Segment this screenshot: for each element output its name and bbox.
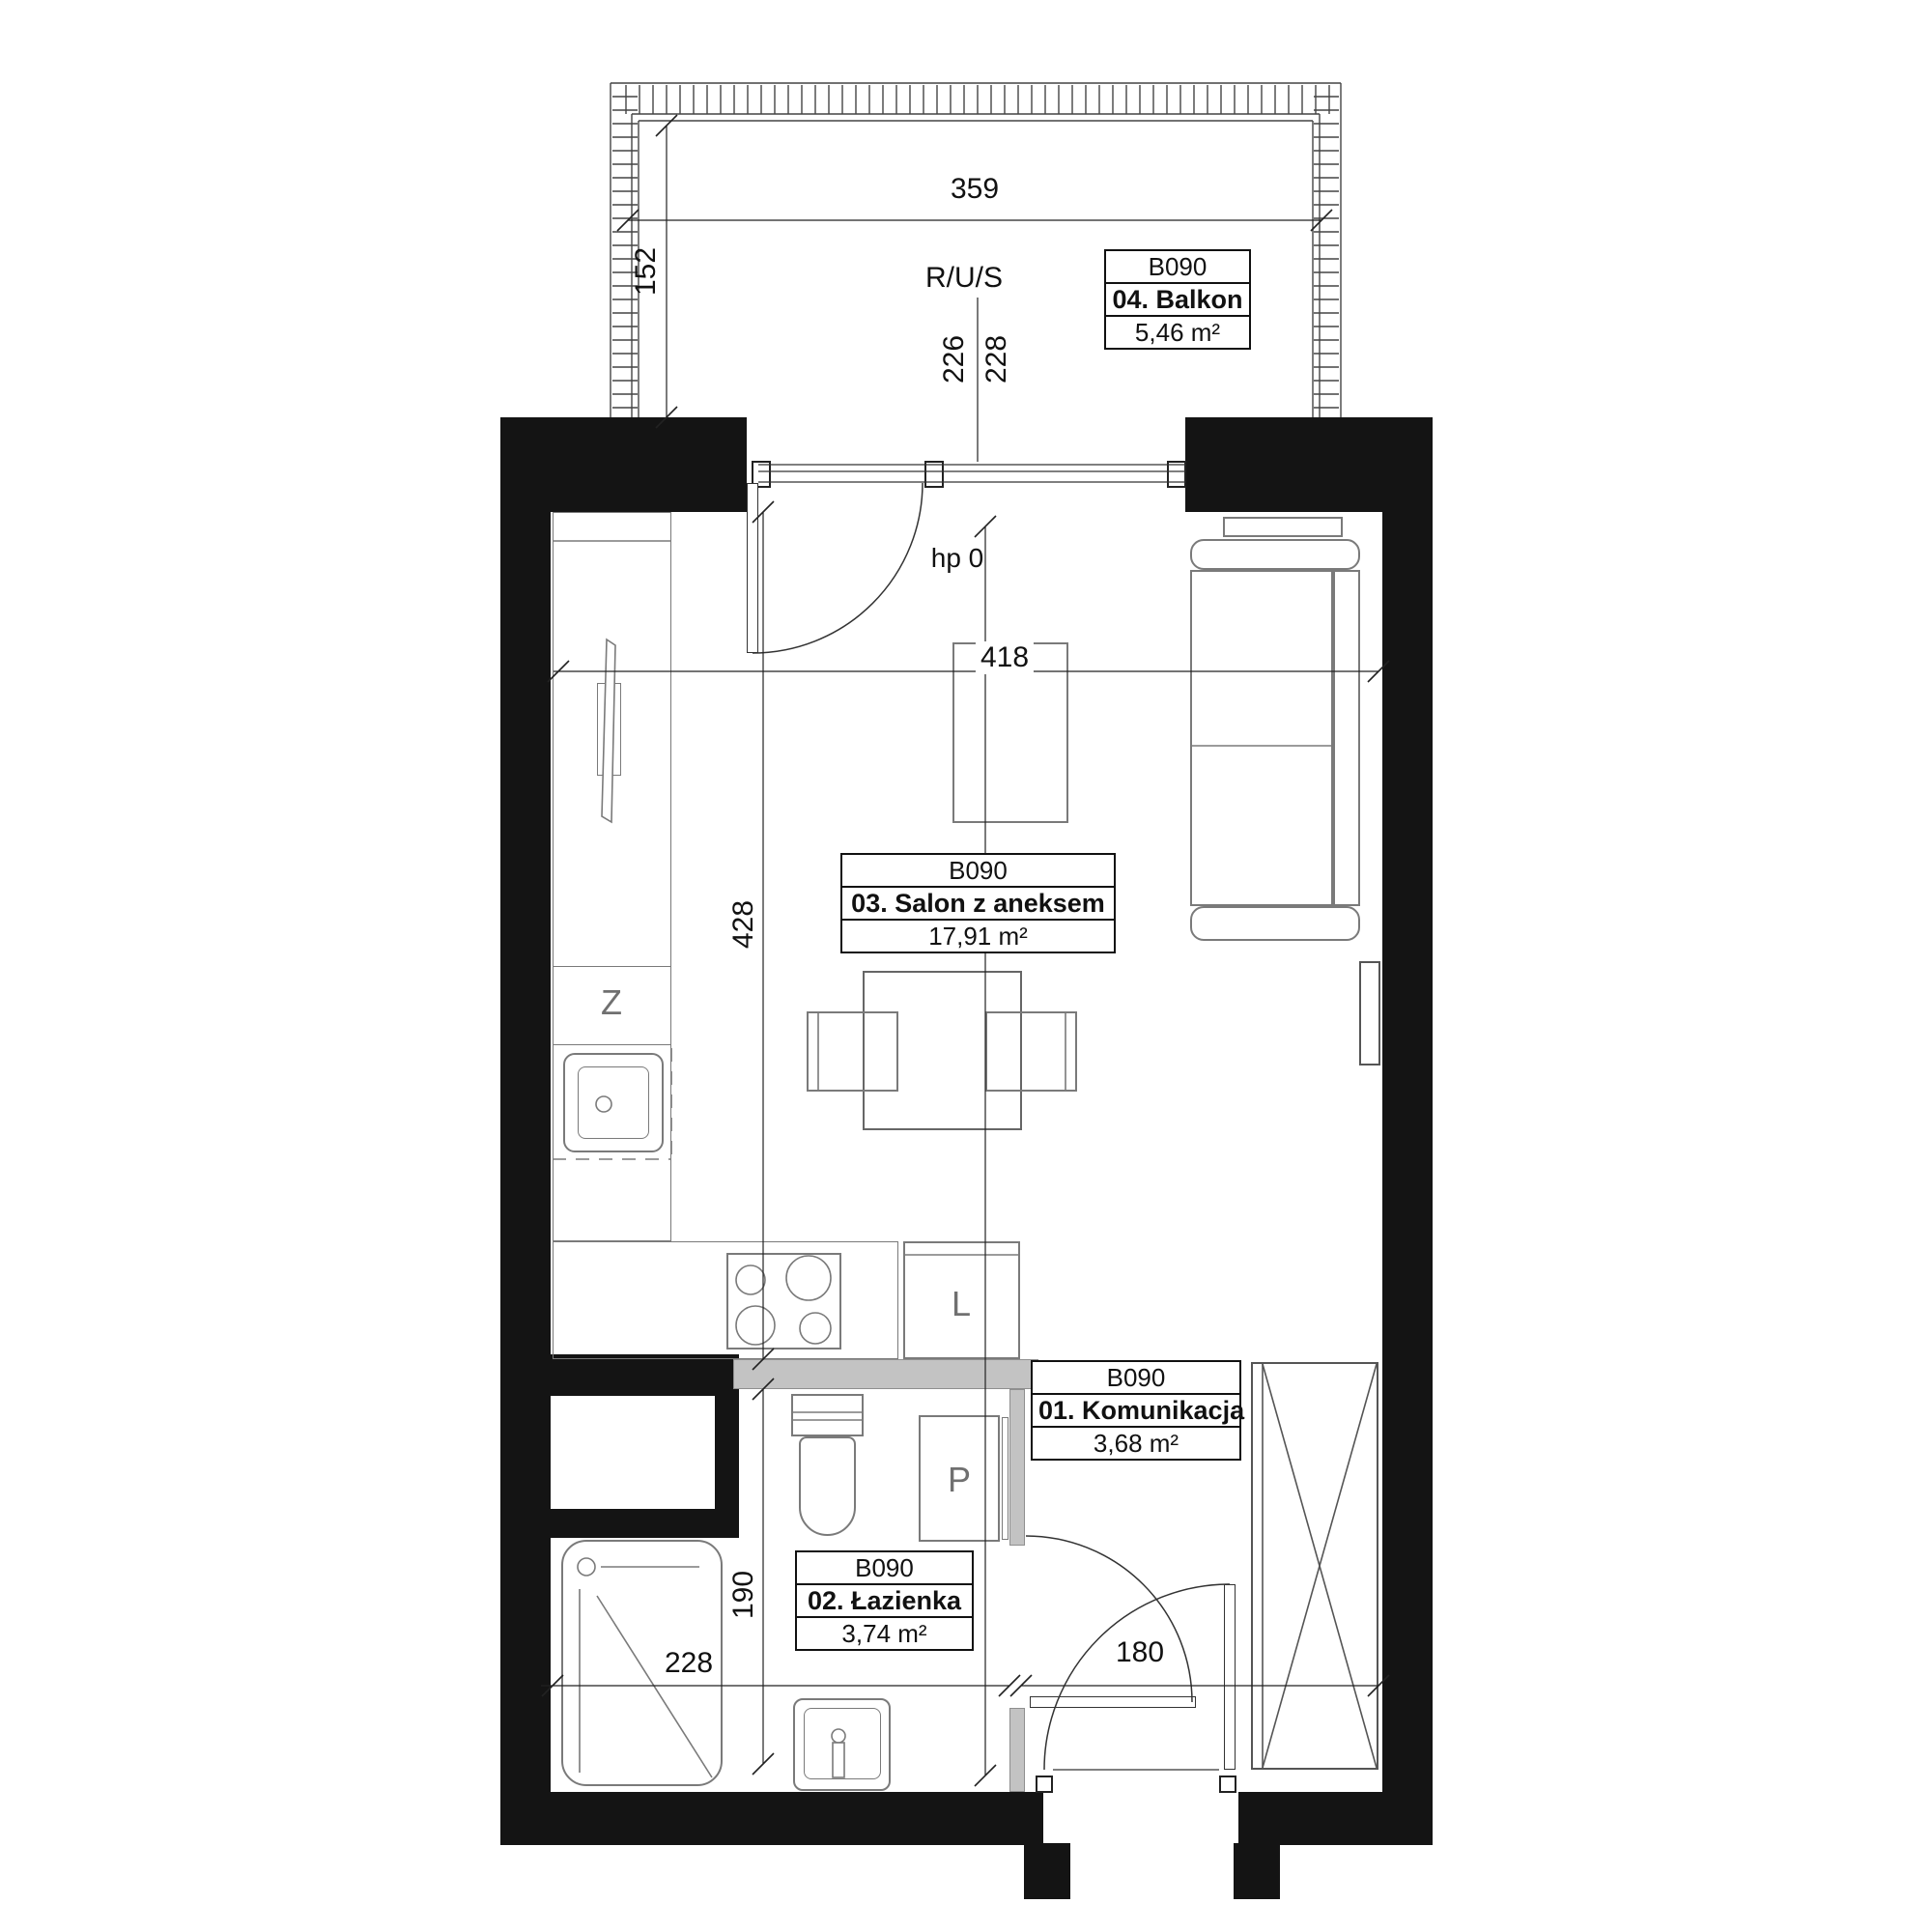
wardrobe: [1251, 1362, 1378, 1770]
entry-door-leaf: [1224, 1584, 1236, 1770]
room-name: 01. Komunikacja: [1033, 1395, 1239, 1428]
room-area: 17,91 m²: [842, 921, 1114, 952]
entry-frame-right: [1219, 1776, 1236, 1793]
sofa-armrest-top: [1190, 539, 1360, 570]
partition-bathroom-right-lower: [1009, 1708, 1025, 1792]
dim-balcony-width: 359: [951, 173, 999, 206]
room-name: 03. Salon z aneksem: [842, 888, 1114, 921]
dim-salon-width: 418: [976, 641, 1034, 674]
room-code: B090: [842, 855, 1114, 888]
chair-left: [807, 1011, 898, 1092]
room-area: 5,46 m²: [1106, 317, 1249, 348]
room-name: 04. Balkon: [1106, 284, 1249, 317]
kitchen-counter-bottom: [553, 1241, 898, 1359]
dim-balcony-depth: 152: [630, 247, 663, 296]
door-sill-label: hp 0: [931, 543, 984, 574]
room-area: 3,74 m²: [797, 1618, 972, 1649]
dim-bathroom-depth: 190: [727, 1566, 760, 1624]
radiator: [1359, 961, 1380, 1065]
chair-right: [985, 1011, 1077, 1092]
entry-jamb-left: [1024, 1843, 1070, 1899]
dim-hall-width: 180: [1111, 1636, 1169, 1669]
sofa-seat: [1190, 570, 1333, 906]
wall-bottom-left: [500, 1792, 1043, 1845]
toilet-tank: [791, 1394, 864, 1436]
room-code: B090: [1033, 1362, 1239, 1395]
dim-kitchen-depth: 428: [727, 895, 760, 953]
room-area: 3,68 m²: [1033, 1428, 1239, 1459]
room-label-komunikacja: B090 01. Komunikacja 3,68 m²: [1031, 1360, 1241, 1461]
room-code: B090: [1106, 251, 1249, 284]
duct-shaft-opening: [551, 1396, 715, 1509]
room-name: 02. Łazienka: [797, 1585, 972, 1618]
decor-mirror: [597, 683, 621, 776]
stove: [726, 1253, 841, 1350]
kitchen-sink-basin: [578, 1066, 649, 1139]
entry-frame-left: [1036, 1776, 1053, 1793]
wall-bottom-right: [1238, 1792, 1433, 1845]
washing-machine-door: [1002, 1417, 1009, 1540]
sofa-armrest-bottom: [1190, 906, 1360, 941]
wall-left: [500, 417, 551, 1845]
window-post-mid: [924, 461, 944, 488]
dim-door-right: 228: [980, 335, 1013, 384]
room-label-salon: B090 03. Salon z aneksem 17,91 m²: [840, 853, 1116, 953]
room-label-balkon: B090 04. Balkon 5,46 m²: [1104, 249, 1251, 350]
room-label-lazienka: B090 02. Łazienka 3,74 m²: [795, 1550, 974, 1651]
balcony-door-leaf: [747, 483, 758, 653]
partition-bathroom-top: [733, 1359, 1038, 1389]
sink-cabinet-label: Z: [601, 982, 622, 1023]
entry-jamb-right: [1234, 1843, 1280, 1899]
toilet-bowl: [799, 1436, 856, 1536]
bathroom-sink-basin: [804, 1708, 881, 1779]
washer-label: P: [948, 1460, 971, 1500]
floor-plan: 359 152 R/U/S 226 228 hp 0 418 428 633 1…: [0, 0, 1932, 1932]
sofa-backrest: [1333, 570, 1360, 906]
window-post-right: [1167, 461, 1186, 488]
fridge-label: L: [952, 1284, 971, 1324]
dim-bathroom-width: 228: [660, 1647, 718, 1680]
wall-right: [1382, 417, 1433, 1845]
bathroom-door-leaf: [1030, 1696, 1196, 1708]
partition-bathroom-right-upper: [1009, 1389, 1025, 1546]
riser-label: R/U/S: [925, 262, 1003, 295]
room-code: B090: [797, 1552, 972, 1585]
dim-door-left: 226: [938, 335, 971, 384]
sofa-pillow: [1223, 517, 1343, 537]
wall-top-left: [500, 417, 747, 512]
